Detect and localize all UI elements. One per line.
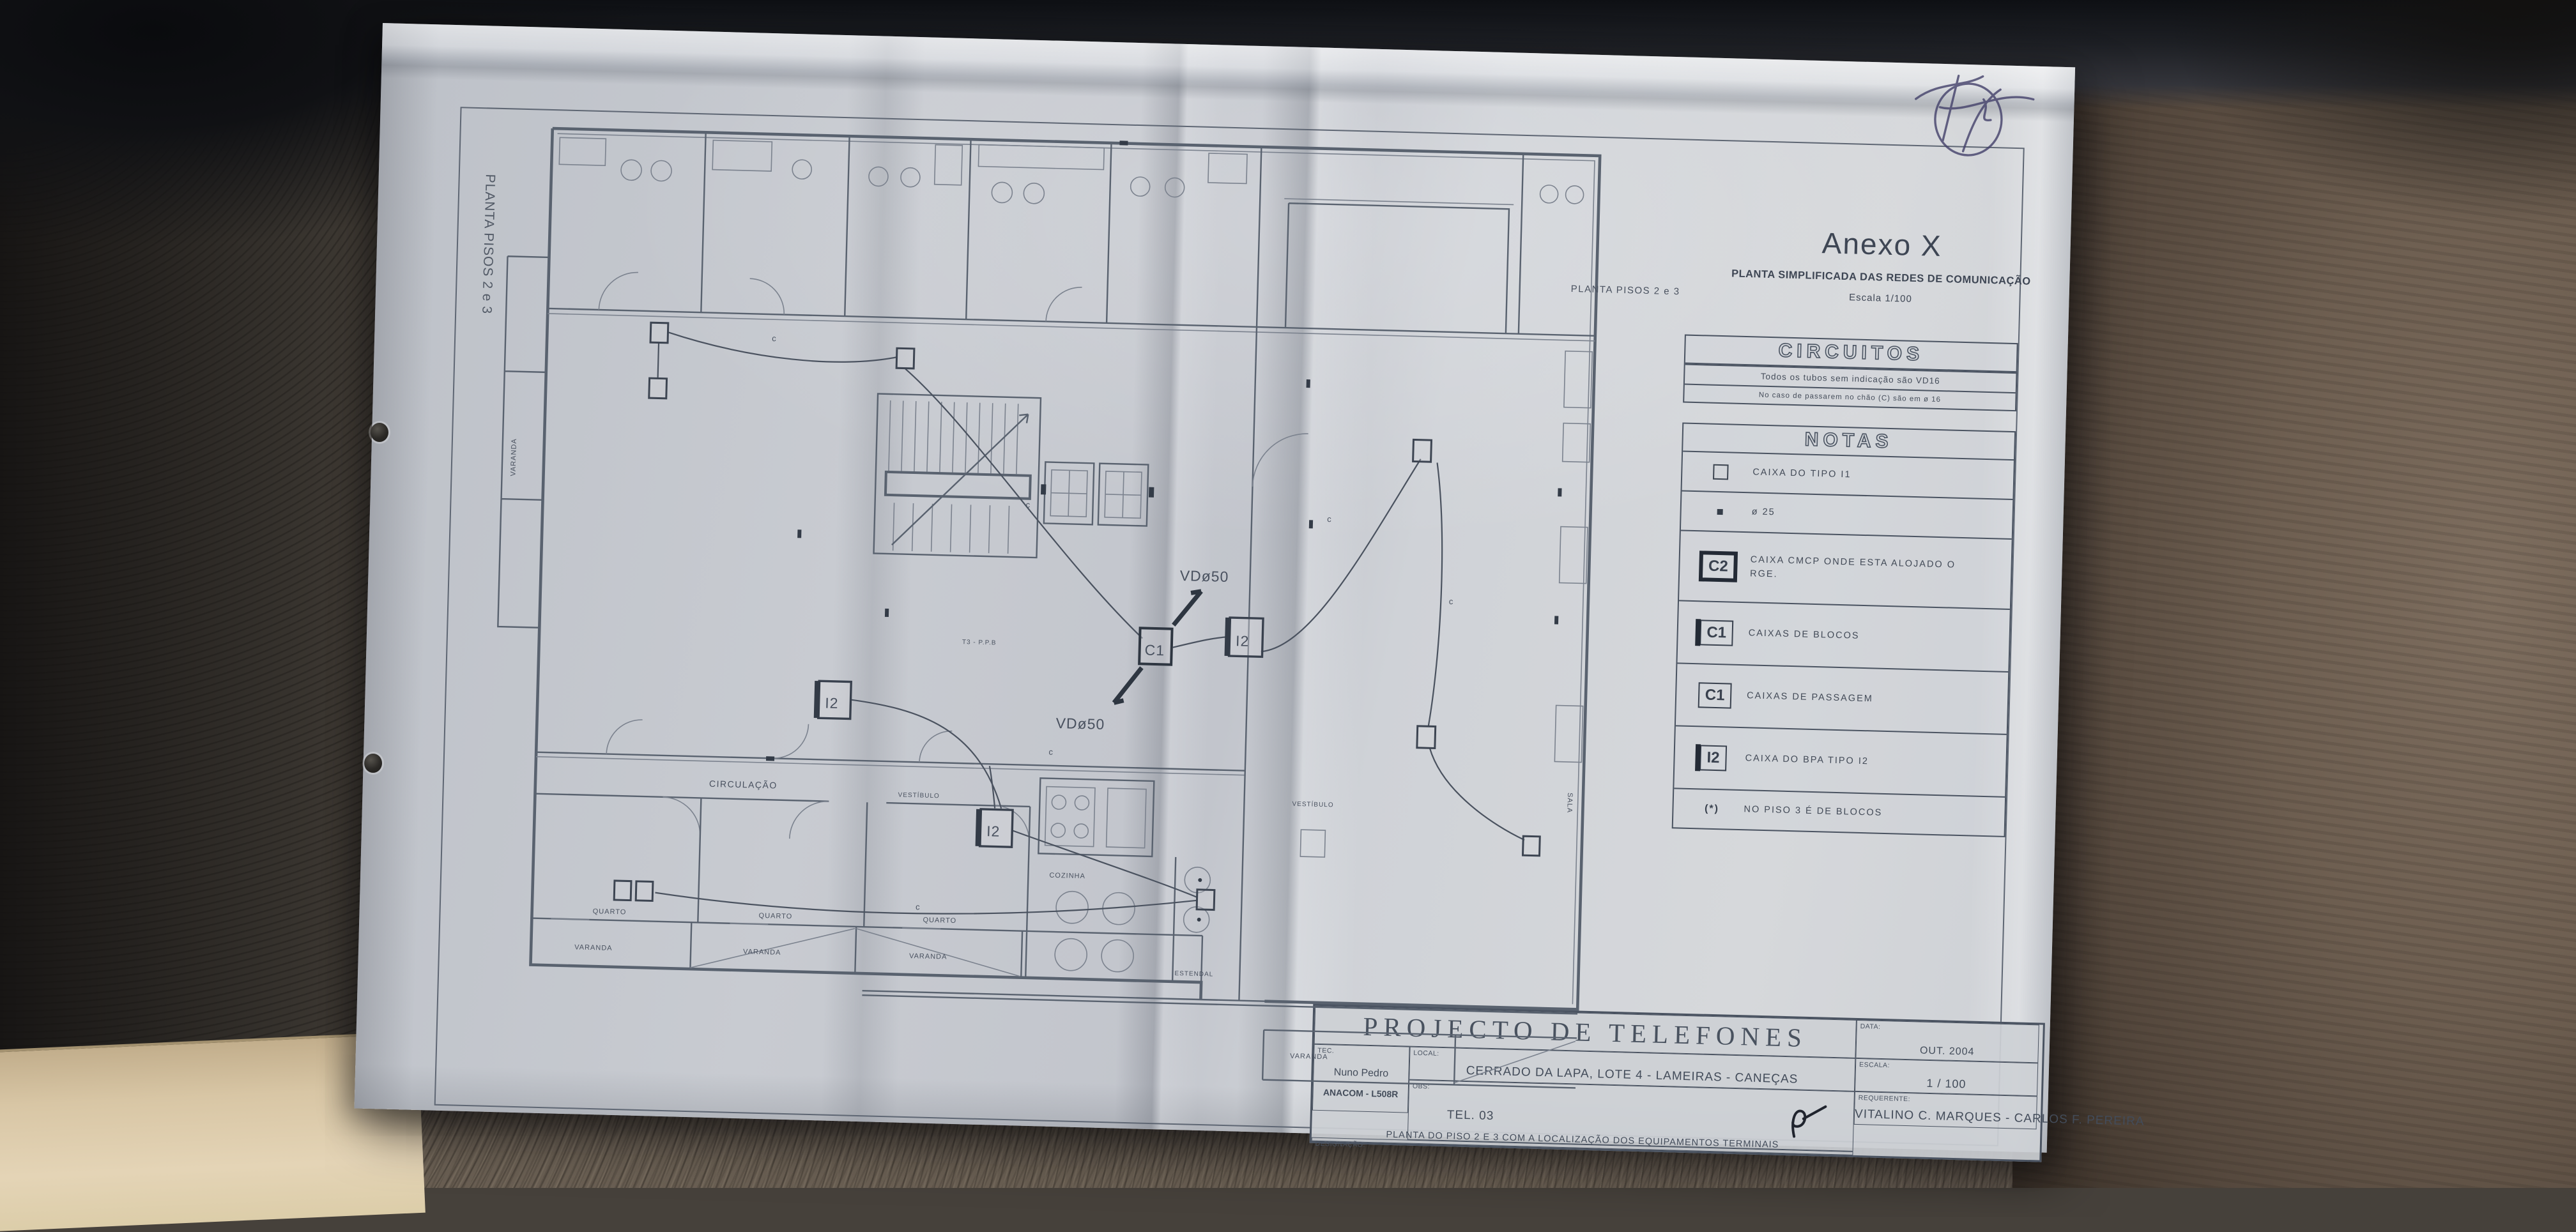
vestibulo-right-label: VESTÍBULO (1292, 800, 1333, 809)
varanda-label: VARANDA (574, 943, 613, 952)
title-block-data-cell: DATA: OUT. 2004 (1855, 1020, 2039, 1063)
notas-row: I2 CAIXA DO BPA TIPO I2 (1674, 726, 2006, 798)
cable-tag: c (1048, 747, 1053, 757)
i2-box-label: I2 (825, 694, 839, 711)
quarto-label: QUARTO (923, 916, 956, 925)
sala-label: SALA (1565, 793, 1574, 813)
outer-walls (489, 127, 1600, 1009)
corridor (534, 717, 1246, 851)
cable-tag: c (772, 333, 776, 343)
c1-blocks-symbol: C1 (1699, 620, 1734, 646)
varanda-label: VARANDA (743, 948, 781, 957)
i2-box-label: I2 (986, 823, 1000, 840)
box-type-i1-symbol (1713, 464, 1729, 480)
asterisk-note-symbol: (*) (1705, 803, 1719, 816)
estendal-label: ESTENDAL (1174, 970, 1213, 978)
floor-plan: PLANTA PISOS 2 e 3 T3 - P.P.B CIRCULAÇÃO (464, 51, 1717, 1092)
applicant-names: VITALINO C. MARQUES - CARLOS F. PEREIRA (1855, 1107, 2036, 1126)
legend-circuitos: CIRCUITOS Todos os tubos sem indicação s… (1683, 335, 2018, 412)
stair-core (874, 393, 1041, 558)
notas-row: C1 CAIXAS DE BLOCOS (1677, 601, 2009, 673)
punch-hole (364, 754, 382, 773)
vd50-label-bottom: VDø50 (1055, 715, 1105, 733)
c1-passage-symbol: C1 (1698, 682, 1732, 708)
technician-registration: ANACOM - L508R (1313, 1087, 1407, 1100)
annex-title: Anexo X (1731, 223, 2032, 265)
obs-signature (1777, 1097, 1836, 1145)
varanda-vertical-label: VARANDA (509, 438, 518, 476)
notas-row: C2 CAIXA CMCP ONDE ESTA ALOJADO O RGE. (1679, 531, 2012, 610)
cable-tag: c (1025, 500, 1030, 510)
i2-box-label: I2 (1236, 632, 1250, 650)
plan-title-text: PLANTA PISOS 2 e 3 (1571, 284, 1680, 297)
varanda-right-label: VARANDA (1290, 1053, 1328, 1061)
legend-notas: NOTAS CAIXA DO TIPO I1 ø 25 C2 CAIXA CMC… (1672, 422, 2016, 837)
handwritten-signature (1900, 59, 2050, 165)
drawing-sheet: PLANTA PISOS 2 e 3 Anexo X PLANTA SIMPLI… (354, 23, 2075, 1153)
c1-box-label: C1 (1144, 642, 1165, 659)
vd50-label-top: VDø50 (1179, 567, 1229, 585)
i2-boxes (811, 607, 1263, 853)
annex-heading: Anexo X PLANTA SIMPLIFICADA DAS REDES DE… (1730, 223, 2032, 307)
cozinha-label: COZINHA (1049, 872, 1085, 880)
title-block-escala-cell: ESCALA: 1 / 100 (1855, 1058, 2038, 1096)
cable-tag: c (1327, 514, 1331, 524)
kitchen (1035, 778, 1213, 982)
annex-subtitle: PLANTA SIMPLIFICADA DAS REDES DE COMUNIC… (1731, 268, 2031, 287)
elevators (1040, 462, 1154, 526)
conduit-25-symbol (1717, 508, 1722, 514)
dark-corner-top-right (2108, 0, 2576, 255)
cable-tag: c (916, 902, 920, 911)
circulacao-label: CIRCULAÇÃO (709, 779, 778, 791)
telephone-cables (644, 331, 1537, 929)
date-value: OUT. 2004 (1856, 1044, 2037, 1060)
quarto-label: QUARTO (758, 912, 792, 920)
terminal-boxes (614, 128, 1570, 924)
top-rooms (547, 128, 1600, 371)
notas-row: (*) NO PISO 3 É DE BLOCOS (1673, 789, 2005, 836)
punch-hole (371, 423, 388, 442)
t3-label: T3 - P.P.B (962, 639, 997, 646)
cable-tag: c (1449, 597, 1453, 606)
varanda-label: VARANDA (909, 952, 947, 961)
title-block-requerente-cell: REQUERENTE: VITALINO C. MARQUES - CARLOS… (1854, 1091, 2037, 1129)
scale-value: 1 / 100 (1855, 1075, 2037, 1093)
vestibulo-label: VESTÍBULO (898, 791, 939, 800)
quarto-label: QUARTO (593, 908, 627, 916)
i2-box-symbol: I2 (1699, 745, 1727, 771)
notas-row: C1 CAIXAS DE PASSAGEM (1676, 664, 2008, 735)
